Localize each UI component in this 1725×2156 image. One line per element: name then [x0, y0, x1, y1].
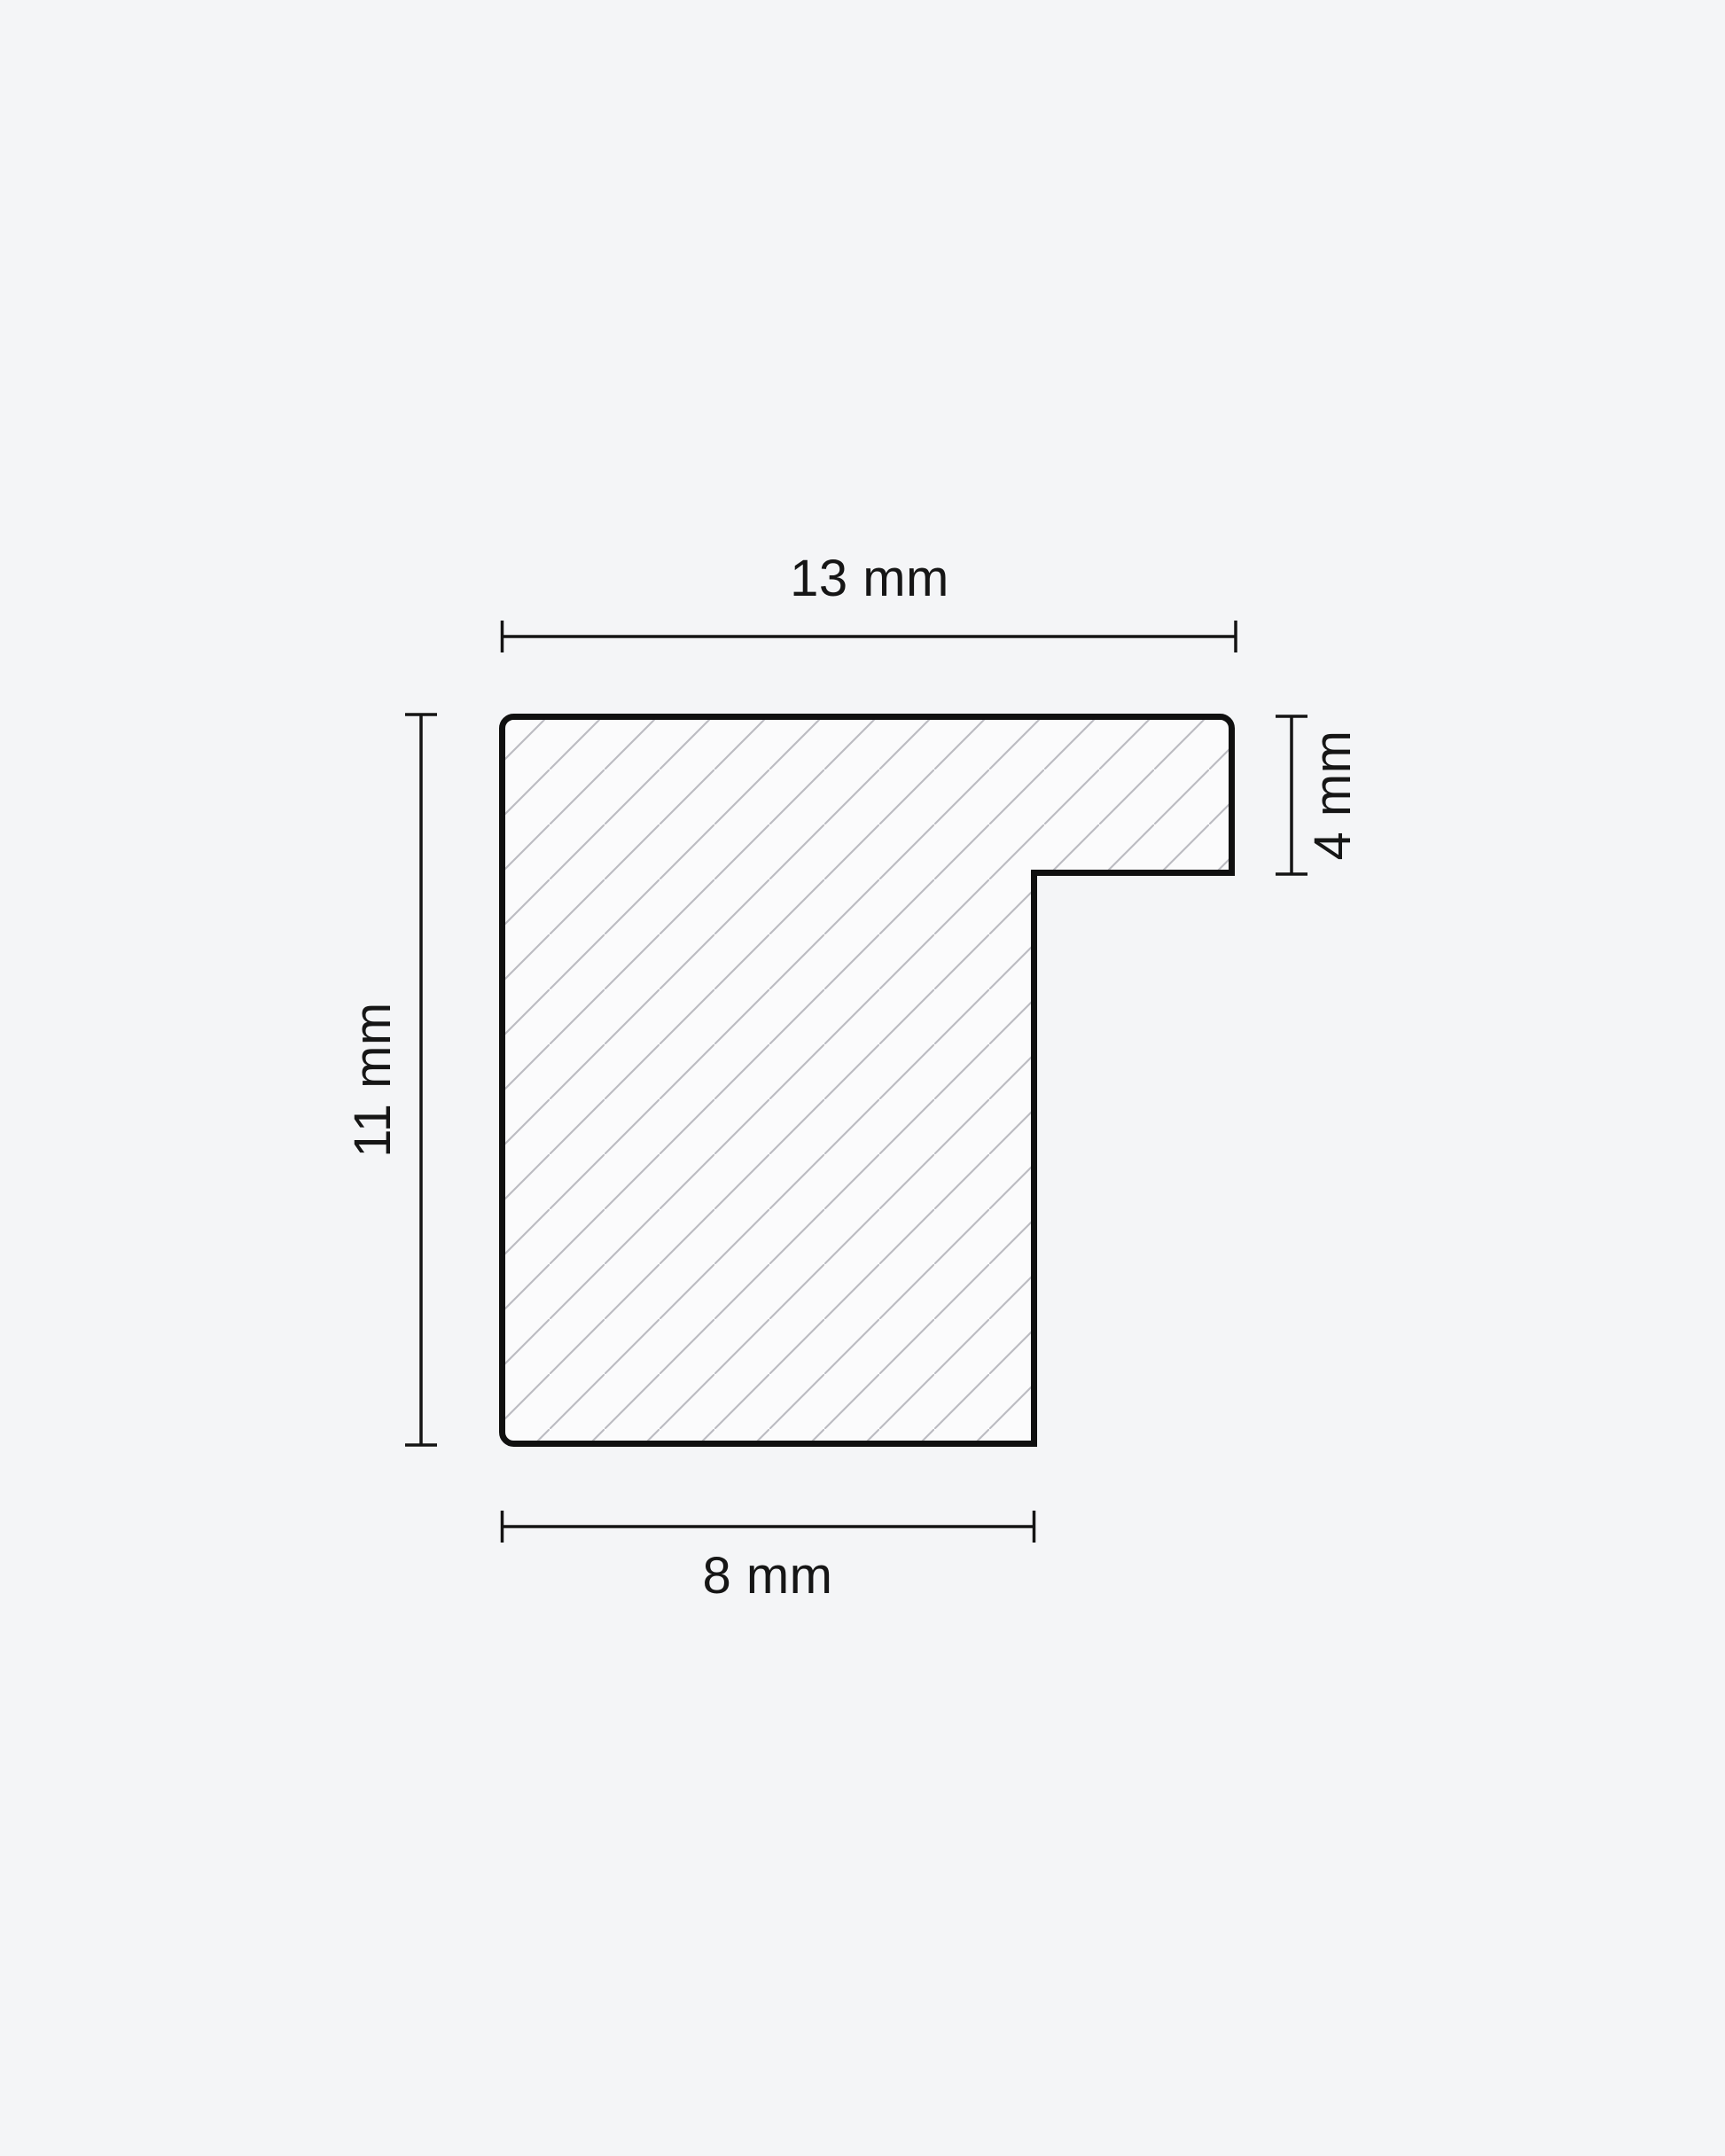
top-width-label: 13 mm: [790, 553, 949, 605]
profile-hatching: [503, 717, 1232, 1444]
bottom-width-label: 8 mm: [703, 1551, 833, 1602]
diagram-canvas: 13 mm 11 mm 4 mm 8 mm: [0, 0, 1725, 2156]
left-height-label: 11 mm: [347, 1002, 399, 1157]
profile-drawing: [0, 0, 1725, 2156]
left-dimension: [405, 715, 437, 1445]
right-dimension: [1276, 716, 1307, 874]
right-rabbet-label: 4 mm: [1307, 730, 1359, 861]
top-dimension: [503, 621, 1237, 652]
bottom-dimension: [503, 1511, 1034, 1543]
